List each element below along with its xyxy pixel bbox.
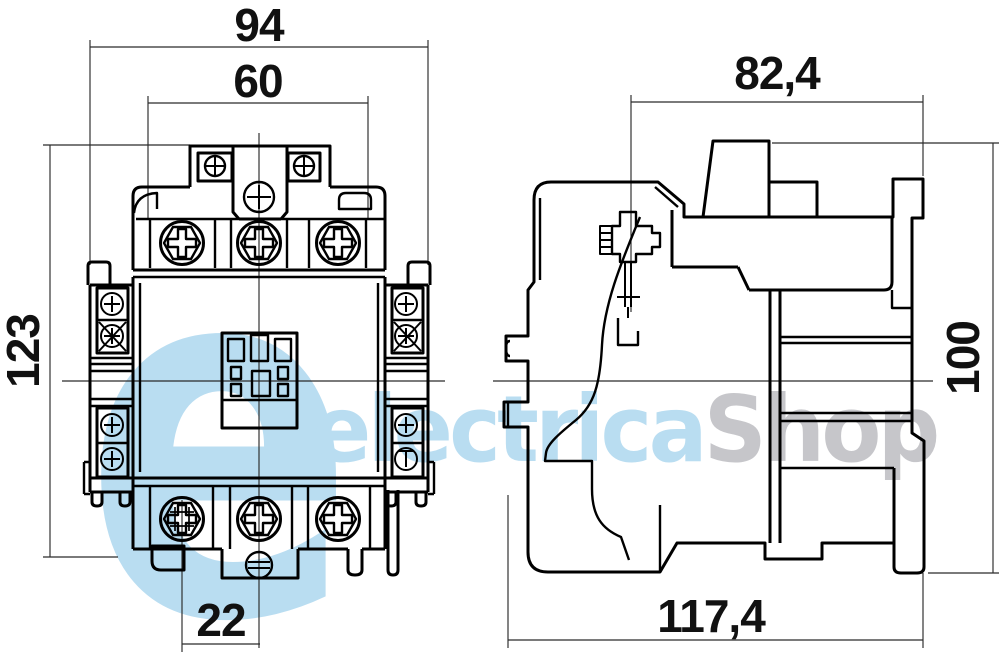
dim-side-upper-depth: 82,4	[734, 50, 820, 96]
dim-front-overall-width: 94	[234, 2, 283, 48]
dim-front-overall-height: 123	[0, 314, 46, 388]
side-view-terminal-screw	[600, 226, 640, 318]
dim-side-plate-height: 100	[940, 321, 986, 395]
dim-front-lower-pitch: 22	[196, 597, 245, 643]
dimension-and-center-lines	[43, 40, 999, 652]
dim-front-terminal-span: 60	[233, 58, 282, 104]
dim-side-overall-depth: 117,4	[657, 593, 765, 639]
contactor-technical-drawing	[0, 0, 1000, 654]
side-view-outline	[504, 141, 924, 573]
side-view-details	[506, 187, 912, 572]
drawing-canvas: e electricaShop	[0, 0, 1000, 654]
dimension-arrowheads	[46, 43, 998, 649]
